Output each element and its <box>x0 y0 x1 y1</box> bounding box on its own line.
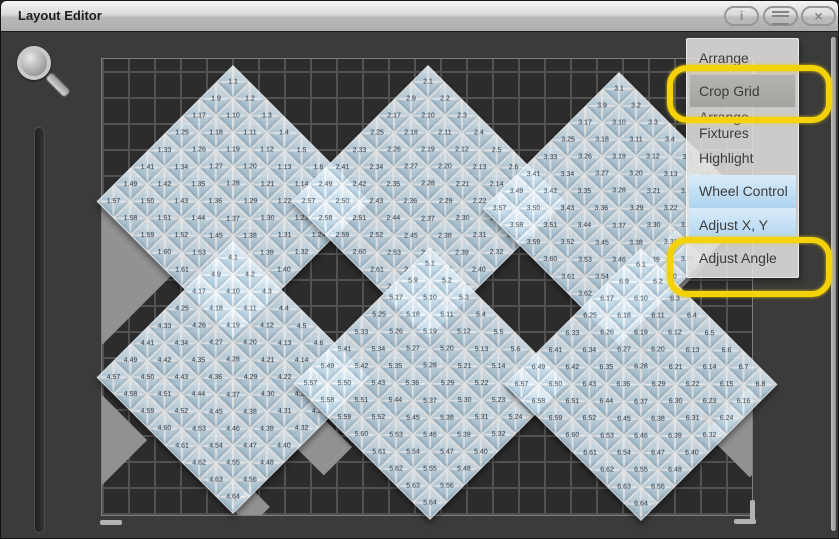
fixture-cell-label: 6.60 <box>566 432 580 439</box>
fixture-cell-label: 4.39 <box>260 425 274 432</box>
fixture-cell-label: 1.5 <box>296 147 306 154</box>
fixture-cell-label: 1.34 <box>175 164 189 171</box>
fixture-cell-label: 6.6 <box>721 347 731 354</box>
fixture-cell-label: 6.31 <box>685 415 699 422</box>
fixture-cell-label: 4.13 <box>277 340 291 347</box>
fixture-cell-label: 2.58 <box>319 215 333 222</box>
fixture-cell-label: 5.37 <box>423 397 437 404</box>
fixture-cell-label: 4.64 <box>226 493 240 500</box>
magnifier-handle <box>44 71 71 98</box>
fixture-cell-label: 6.4 <box>687 313 697 320</box>
fixture-cell-label: 3.49 <box>510 188 524 195</box>
fixture-cell-label: 1.26 <box>192 147 206 154</box>
fixture-cell-label: 4.12 <box>260 323 274 330</box>
fixture-cell-label: 3.10 <box>612 120 626 127</box>
zoom-slider[interactable] <box>34 127 45 533</box>
fixture-cell-label: 5.11 <box>441 312 454 319</box>
fixture-cell-label: 2.31 <box>472 232 486 239</box>
fixture-cell-label: 6.34 <box>583 347 597 354</box>
fixture-cell-label: 6.56 <box>651 483 665 490</box>
fixture-cell-label: 3.35 <box>578 188 592 195</box>
fixture-cell-label: 5.1 <box>425 261 435 268</box>
fixture-cell-label: 4.9 <box>211 272 221 279</box>
fixture-cell-label: 5.20 <box>440 346 454 353</box>
fixture-cell-label: 3.50 <box>527 205 541 212</box>
fixture-cell-label: 5.12 <box>457 329 471 336</box>
fixture-cell-label: 6.46 <box>634 432 648 439</box>
fixture-cell-label: 5.29 <box>440 380 454 387</box>
fixture-cell-label: 1.53 <box>192 249 206 256</box>
fixture-cell-label: 3.54 <box>595 273 609 280</box>
menu-item-highlight[interactable]: Highlight <box>689 141 796 174</box>
fixture-cell-label: 6.49 <box>532 364 546 371</box>
fixture-cell-label: 2.9 <box>406 96 416 103</box>
fixture-cell-label: 3.58 <box>510 222 524 229</box>
fixture-cell-label: 4.60 <box>158 425 172 432</box>
fixture-cell-label: 3.38 <box>629 239 643 246</box>
grid-handle-bottom-left[interactable] <box>100 520 122 525</box>
fixture-cell-label: 6.9 <box>619 279 629 286</box>
fixture-cell-label: 1.42 <box>158 181 172 188</box>
fixture-cell-label: 1.41 <box>141 164 155 171</box>
fixture-cell-label: 1.9 <box>211 96 221 103</box>
fixture-cell-label: 5.44 <box>389 397 403 404</box>
annotation-ring-crop-grid <box>667 65 832 123</box>
window-title: Layout Editor <box>18 8 102 23</box>
fixture-cell-label: 6.15 <box>719 381 733 388</box>
fixture-cell-label: 4.49 <box>124 357 138 364</box>
fixture-cell-label: 3.52 <box>561 239 575 246</box>
fixture-cell-label: 1.51 <box>158 215 172 222</box>
hamburger-icon <box>772 11 789 25</box>
fixture-cell-label: 6.24 <box>719 415 733 422</box>
fixture-cell-label: 4.37 <box>226 391 240 398</box>
fixture-cell-label: 6.23 <box>702 398 716 405</box>
fixture-cell-label: 4.59 <box>141 408 155 415</box>
fixture-cell-label: 5.52 <box>372 414 386 421</box>
fixture-cell-label: 5.51 <box>355 397 369 404</box>
fixture-cell-label: 6.27 <box>617 347 631 354</box>
fixture-cell-label: 2.2 <box>440 96 450 103</box>
fixture-cell-label: 4.36 <box>209 374 223 381</box>
fixture-cell-label: 1.29 <box>243 198 257 205</box>
fixture-cell-label: 3.25 <box>561 137 575 144</box>
fixture-cell-label: 6.1 <box>636 262 646 269</box>
fixture-cell-label: 4.51 <box>158 391 172 398</box>
fixture-cell-label: 4.41 <box>141 340 155 347</box>
fixture-cell-label: 5.17 <box>389 295 403 302</box>
fixture-cell-label: 3.9 <box>597 103 607 110</box>
fixture-cell-label: 5.3 <box>459 295 469 302</box>
fixture-cell-label: 6.18 <box>617 313 631 320</box>
fixture-cell-label: 4.58 <box>124 391 138 398</box>
fixture-cell-label: 6.17 <box>600 296 614 303</box>
fixture-cell-label: 5.42 <box>355 363 369 370</box>
fixture-cell-label: 5.40 <box>474 448 488 455</box>
fixture-cell-label: 2.34 <box>370 164 384 171</box>
fixture-cell-label: 5.48 <box>457 465 471 472</box>
fixture-cell-label: 1.30 <box>260 215 274 222</box>
fixture-cell-label: 5.30 <box>457 397 471 404</box>
fixture-cell-label: 6.19 <box>634 330 648 337</box>
fixture-cell-label: 6.28 <box>634 364 648 371</box>
fixture-cell-label: 2.19 <box>421 147 435 154</box>
fixture-cell-label: 6.62 <box>600 466 614 473</box>
fixture-cell-label: 2.53 <box>387 249 401 256</box>
title-bar: Layout Editor i × <box>1 1 838 32</box>
fixture-cell-label: 5.18 <box>406 312 420 319</box>
fixture-cell-label: 1.1 <box>228 79 238 86</box>
fixture-cell-label: 6.5 <box>704 330 714 337</box>
fixture-cell-label: 3.11 <box>630 137 643 144</box>
fixture-cell-label: 6.2 <box>653 279 663 286</box>
fixture-cell-label: 5.23 <box>491 397 505 404</box>
fixture-cell-label: 3.3 <box>648 120 658 127</box>
fixture-cell-label: 1.36 <box>209 198 223 205</box>
fixture-cell-label: 4.21 <box>260 357 274 364</box>
fixture-cell-label: 4.11 <box>244 306 257 313</box>
fixture-cell-label: 1.57 <box>107 198 121 205</box>
fixture-cell-label: 4.25 <box>175 306 189 313</box>
fixture-cell-label: 4.43 <box>175 374 189 381</box>
fixture-cell-label: 5.5 <box>493 329 503 336</box>
fixture-cell-label: 4.18 <box>209 306 223 313</box>
fixture-cell-label: 6.20 <box>651 347 665 354</box>
fixture-cell-label: 3.22 <box>663 205 677 212</box>
fixture-cell-label: 4.40 <box>277 442 291 449</box>
fixture-cell-label: 5.47 <box>440 448 454 455</box>
fixture-cell-label: 3.4 <box>665 137 675 144</box>
magnifier-zoom-icon[interactable] <box>17 46 49 78</box>
fixture-cell-label: 5.49 <box>321 363 335 370</box>
fixture-cell-label: 2.14 <box>489 181 503 188</box>
fixture-cell-label: 3.1 <box>614 86 624 93</box>
fixture-cell-label: 1.58 <box>124 215 138 222</box>
fixture-cell-label: 1.21 <box>260 181 274 188</box>
fixture-cell-label: 3.33 <box>544 154 558 161</box>
fixture-cell-label: 2.60 <box>353 249 367 256</box>
fixture-cell-label: 6.30 <box>668 398 682 405</box>
fixture-cell-label: 6.3 <box>670 296 680 303</box>
fixture-cell-label: 6.50 <box>549 381 563 388</box>
fixture-cell-label: 1.25 <box>175 130 189 137</box>
fixture-cell-label: 6.37 <box>634 398 648 405</box>
fixture-cell-label: 2.59 <box>336 232 350 239</box>
fixture-cell-label: 5.19 <box>423 329 437 336</box>
fixture-cell-label: 1.17 <box>192 113 206 120</box>
fixture-cell-label: 3.41 <box>527 171 541 178</box>
fixture-cell-label: 4.55 <box>226 459 240 466</box>
fixture-cell-label: 2.36 <box>404 198 418 205</box>
fixture-cell-label: 4.30 <box>260 391 274 398</box>
fixture-cell-label: 1.28 <box>226 181 240 188</box>
fixture-cell-label: 6.40 <box>685 449 699 456</box>
fixture-cell-label: 6.32 <box>702 432 716 439</box>
fixture-cell-label: 4.5 <box>296 323 306 330</box>
fixture-cell-label: 5.24 <box>508 414 522 421</box>
fixture-cell-label: 1.20 <box>243 164 257 171</box>
fixture-cell-label: 6.43 <box>583 381 597 388</box>
fixture-cell-label: 6.64 <box>634 500 648 507</box>
fixture-cell-label: 6.16 <box>737 398 751 405</box>
fixture-cell-label: 6.25 <box>583 313 597 320</box>
fixture-cell-label: 1.40 <box>277 266 291 273</box>
fixture-cell-label: 3.42 <box>544 188 558 195</box>
fixture-cell-label: 4.50 <box>141 374 155 381</box>
fixture-cell-label: 6.44 <box>600 398 614 405</box>
fixture-cell-label: 6.39 <box>668 432 682 439</box>
fixture-cell-label: 5.60 <box>355 431 369 438</box>
fixture-cell-label: 5.32 <box>491 431 505 438</box>
fixture-cell-label: 3.20 <box>629 171 643 178</box>
fixture-cell-label: 3.51 <box>544 222 558 229</box>
fixture-cell-label: 4.61 <box>175 442 189 449</box>
fixture-cell-label: 4.54 <box>209 442 223 449</box>
fixture-cell-label: 1.2 <box>245 96 255 103</box>
fixture-cell-label: 6.12 <box>668 330 682 337</box>
fixture-cell-label: 6.59 <box>549 415 563 422</box>
fixture-cell-label: 2.28 <box>421 181 435 188</box>
fixture-cell-label: 4.26 <box>192 323 206 330</box>
fixture-cell-label: 5.56 <box>440 482 454 489</box>
fixture-cell-label: 4.20 <box>243 340 257 347</box>
fixture-cell-label: 4.57 <box>107 374 121 381</box>
fixture-cell-label: 1.38 <box>243 232 257 239</box>
fixture-cell-label: 5.34 <box>372 346 386 353</box>
fixture-cell-label: 1.4 <box>279 130 289 137</box>
fixture-cell-label: 4.47 <box>243 442 257 449</box>
fixture-cell-label: 1.60 <box>158 249 172 256</box>
fixture-cell-label: 3.27 <box>595 171 609 178</box>
fixture-cell-label: 2.45 <box>404 232 418 239</box>
menu-button[interactable] <box>763 6 798 26</box>
fixture-cell-label: 3.61 <box>561 273 575 280</box>
fixture-cell-label: 5.39 <box>457 431 471 438</box>
fixture-cell-label: 1.3 <box>262 113 272 120</box>
info-button[interactable]: i <box>724 6 759 26</box>
fixture-cell-label: 3.12 <box>646 154 660 161</box>
fixture-cell-label: 5.46 <box>423 431 437 438</box>
fixture-cell-label: 5.45 <box>406 414 420 421</box>
fixture-cell-label: 3.37 <box>612 222 626 229</box>
fixture-cell-label: 1.11 <box>244 130 257 137</box>
close-button[interactable]: × <box>801 6 836 26</box>
fixture-cell-label: 4.53 <box>192 425 206 432</box>
fixture-cell-label: 5.26 <box>389 329 403 336</box>
fixture-cell-label: 2.25 <box>370 130 384 137</box>
fixture-cell-label: 5.22 <box>474 380 488 387</box>
fixture-cell-label: 2.33 <box>353 147 367 154</box>
fixture-cell-label: 3.28 <box>612 188 626 195</box>
fixture-cell-label: 5.58 <box>321 397 335 404</box>
fixture-cell-label: 1.52 <box>175 232 189 239</box>
fixture-cell-label: 1.32 <box>294 249 308 256</box>
fixture-cell-label: 4.34 <box>175 340 189 347</box>
fixture-cell-label: 3.17 <box>578 120 592 127</box>
fixture-cell-label: 5.9 <box>408 278 418 285</box>
fixture-cell-label: 6.8 <box>756 381 766 388</box>
fixture-cell-label: 1.19 <box>226 147 240 154</box>
fixture-cell-label: 2.18 <box>404 130 418 137</box>
fixture-cell-label: 2.37 <box>421 215 435 222</box>
fixture-cell-label: 6.36 <box>617 381 631 388</box>
fixture-cell-label: 6.35 <box>600 364 614 371</box>
fixture-cell-label: 4.52 <box>175 408 189 415</box>
menu-item-wheel-control[interactable]: Wheel Control <box>689 175 796 208</box>
fixture-cell-label: 2.17 <box>387 113 401 120</box>
fixture-cell-label: 1.13 <box>277 164 291 171</box>
fixture-cell-label: 3.46 <box>612 256 626 263</box>
fixture-cell-label: 1.43 <box>175 198 189 205</box>
fixture-cell-label: 4.19 <box>226 323 240 330</box>
fixture-cell-label: 5.27 <box>406 346 420 353</box>
fixture-cell-label: 4.35 <box>192 357 206 364</box>
fixture-cell-label: 2.39 <box>455 249 469 256</box>
fixture-cell-label: 5.28 <box>423 363 437 370</box>
magnifier-lens <box>17 46 51 80</box>
fixture-cell-label: 4.4 <box>279 306 289 313</box>
fixture-cell-label: 2.27 <box>404 164 418 171</box>
fixture-cell-label: 2.41 <box>336 164 350 171</box>
fixture-cell-label: 1.44 <box>192 215 206 222</box>
fixture-cell-label: 4.3 <box>262 289 272 296</box>
fixture-cell-label: 1.37 <box>226 215 240 222</box>
fixture-cell-label: 4.62 <box>192 459 206 466</box>
fixture-cell-label: 6.11 <box>652 313 665 320</box>
fixture-cell-label: 4.48 <box>260 459 274 466</box>
fixture-cell-label: 2.38 <box>438 232 452 239</box>
fixture-cell-label: 2.44 <box>387 215 401 222</box>
fixture-cell-label: 3.43 <box>561 205 575 212</box>
fixture-cell-label: 1.35 <box>192 181 206 188</box>
fixture-cell-label: 4.32 <box>294 425 308 432</box>
fixture-cell-label: 4.45 <box>209 408 223 415</box>
fixture-cell-label: 5.59 <box>338 414 352 421</box>
fixture-cell-label: 3.59 <box>527 239 541 246</box>
fixture-cell-label: 2.20 <box>438 164 452 171</box>
fixture-cell-label: 5.2 <box>442 278 452 285</box>
fixture-cell-label: 3.36 <box>595 205 609 212</box>
fixture-cell-label: 2.6 <box>508 164 518 171</box>
fixture-cell-label: 5.33 <box>355 329 369 336</box>
fixture-cell-label: 4.31 <box>277 408 291 415</box>
fixture-cell-label: 2.51 <box>353 215 367 222</box>
fixture-cell-label: 4.38 <box>243 408 257 415</box>
fixture-cell-label: 2.50 <box>336 198 350 205</box>
grid-handle-bottom-right-v[interactable] <box>750 500 755 521</box>
fixture-cell-label: 6.52 <box>583 415 597 422</box>
fixture-cell-label: 3.34 <box>561 171 575 178</box>
fixture-cell-label: 2.10 <box>421 113 435 120</box>
fixture-cell-label: 1.31 <box>277 232 291 239</box>
fixture-cell-label: 2.1 <box>423 79 433 86</box>
window-edge-scrollbar[interactable] <box>831 37 836 531</box>
fixture-cell-label: 1.33 <box>158 147 172 154</box>
fixture-cell-label: 2.4 <box>474 130 484 137</box>
fixture-cell-label: 5.31 <box>474 414 488 421</box>
fixture-cell-label: 6.48 <box>668 466 682 473</box>
fixture-cell-label: 5.21 <box>457 363 471 370</box>
fixture-cell-label: 1.10 <box>226 113 240 120</box>
fixture-cell-label: 2.11 <box>439 130 452 137</box>
fixture-cell-label: 3.19 <box>612 154 626 161</box>
fixture-cell-label: 4.44 <box>192 391 206 398</box>
fixture-cell-label: 2.12 <box>455 147 469 154</box>
fixture-cell-label: 6.55 <box>634 466 648 473</box>
fixture-cell-label: 6.63 <box>617 483 631 490</box>
fixture-cell-label: 5.63 <box>406 482 420 489</box>
fixture-cell-label: 5.55 <box>423 465 437 472</box>
fixture-cell-label: 1.18 <box>209 130 223 137</box>
fixture-cell-label: 4.29 <box>243 374 257 381</box>
fixture-cell-label: 4.6 <box>313 340 323 347</box>
fixture-cell-label: 2.49 <box>319 181 333 188</box>
fixture-cell-label: 1.50 <box>141 198 155 205</box>
fixture-cell-label: 5.41 <box>338 346 352 353</box>
fixture-cell-label: 4.2 <box>245 272 255 279</box>
fixture-cell-label: 1.61 <box>175 266 189 273</box>
fixture-cell-label: 6.41 <box>549 347 563 354</box>
fixture-cell-label: 5.38 <box>440 414 454 421</box>
fixture-cell-label: 2.13 <box>472 164 486 171</box>
fixture-cell-label: 2.35 <box>387 181 401 188</box>
annotation-ring-adjust-angle <box>667 237 832 297</box>
fixture-cell-label: 4.27 <box>209 340 223 347</box>
fixture-cell-label: 6.21 <box>668 364 682 371</box>
fixture-cell-label: 6.57 <box>515 381 529 388</box>
fixture-cell-label: 4.14 <box>294 357 308 364</box>
fixture-cell-label: 6.45 <box>617 415 631 422</box>
fixture-cell-label: 6.58 <box>532 398 546 405</box>
fixture-cell-label: 5.35 <box>389 363 403 370</box>
fixture-cell-label: 4.63 <box>209 476 223 483</box>
fixture-cell-label: 2.22 <box>472 198 486 205</box>
fixture-cell-label: 2.26 <box>387 147 401 154</box>
fixture-cell-label: 6.47 <box>651 449 665 456</box>
fixture-cell-label: 6.10 <box>634 296 648 303</box>
fixture-cell-label: 6.26 <box>600 330 614 337</box>
fixture-cell-label: 3.57 <box>493 205 507 212</box>
fixture-cell-label: 5.36 <box>406 380 420 387</box>
fixture-cell-label: 6.61 <box>583 449 597 456</box>
fixture-cell-label: 4.17 <box>192 289 206 296</box>
fixture-cell-label: 2.43 <box>370 198 384 205</box>
fixture-cell-label: 1.49 <box>124 181 138 188</box>
fixture-cell-label: 3.30 <box>646 222 660 229</box>
fixture-cell-label: 2.57 <box>302 198 316 205</box>
fixture-cell-label: 4.10 <box>226 289 240 296</box>
fixture-cell-label: 6.38 <box>651 415 665 422</box>
fixture-cell-label: 4.1 <box>228 255 238 262</box>
fixture-cell-label: 4.28 <box>226 357 240 364</box>
fixture-cell-label: 6.53 <box>600 432 614 439</box>
fixture-cell-label: 1.22 <box>277 198 291 205</box>
fixture-cell-label: 6.54 <box>617 449 631 456</box>
fixture-cell-label: 1.27 <box>209 164 223 171</box>
fixture-cell-label: 2.5 <box>491 147 501 154</box>
fixture-cell-label: 5.25 <box>372 312 386 319</box>
fixture-cell-label: 6.14 <box>702 364 716 371</box>
fixture-cell-label: 6.7 <box>738 364 748 371</box>
fixture-cell-label: 5.61 <box>372 448 386 455</box>
fixture-cell-label: 5.10 <box>423 295 437 302</box>
fixture-cell-label: 5.6 <box>510 346 520 353</box>
fixture-cell-label: 6.22 <box>685 381 699 388</box>
fixture-cell-label: 2.52 <box>370 232 384 239</box>
fixture-cell-label: 5.53 <box>389 431 403 438</box>
fixture-cell-label: 2.29 <box>438 198 452 205</box>
fixture-cell-label: 2.21 <box>455 181 469 188</box>
